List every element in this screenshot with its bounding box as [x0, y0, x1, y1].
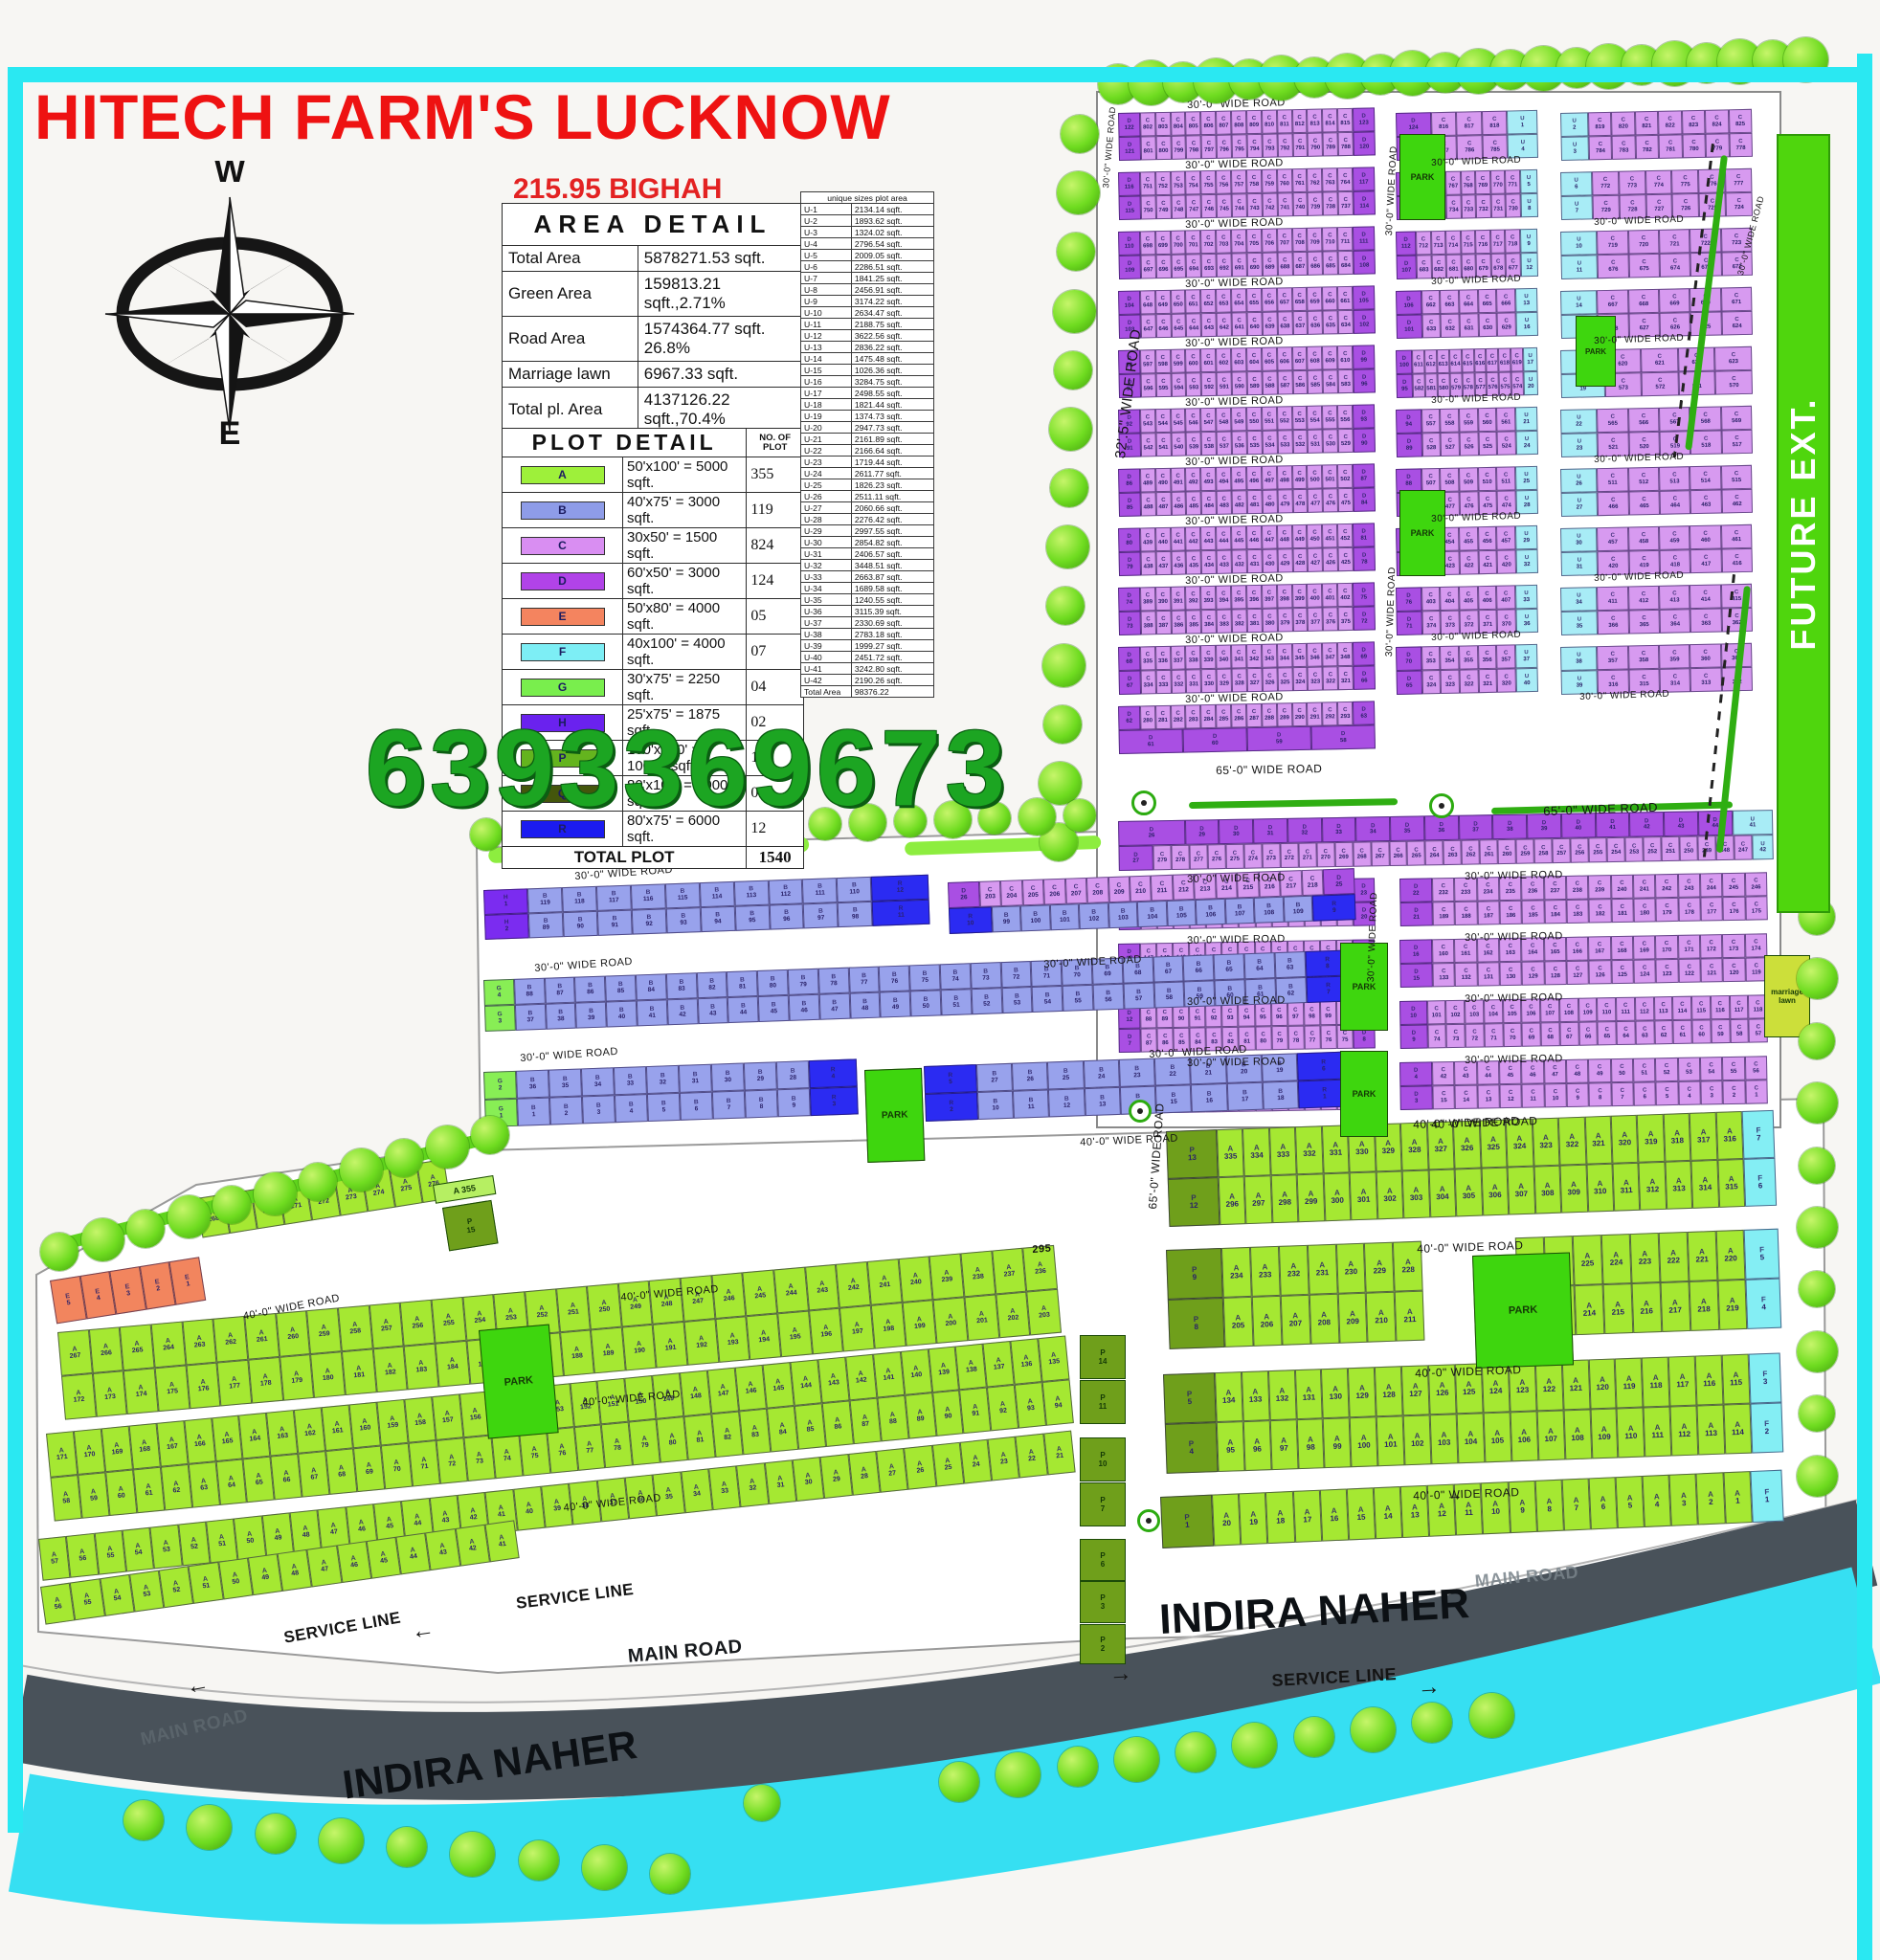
plot-number: 184: [447, 1364, 459, 1371]
plot-number: 87: [556, 991, 563, 997]
plot-letter: U: [1527, 199, 1531, 205]
plot-number: 105: [1491, 1437, 1505, 1446]
plot-cell: A145: [763, 1362, 795, 1409]
plot-cell: A30: [793, 1457, 825, 1502]
plot-letter: A: [1573, 1376, 1578, 1385]
plot-letter: D: [1127, 534, 1130, 540]
map-chip: P 7: [1080, 1482, 1126, 1526]
plot-cell: B79: [788, 969, 819, 995]
plot-cell: C714: [1445, 231, 1461, 255]
plot-cell: A85: [795, 1403, 826, 1450]
plot-cell: A190: [622, 1325, 658, 1371]
plot-number: 41: [1750, 822, 1757, 828]
plot-number: 206: [1261, 1321, 1274, 1329]
plot-cell: C169: [1633, 935, 1656, 959]
plot-number: 103: [1469, 1012, 1479, 1017]
plot-letter: C: [1179, 1010, 1183, 1015]
plot-cell: C204: [1000, 880, 1022, 906]
plot-number: 83: [751, 1432, 759, 1439]
plot-number: 64: [1256, 966, 1263, 972]
plot-letter: C: [1735, 317, 1738, 323]
plot-letter: C: [1207, 556, 1211, 562]
plot-cell: U1: [1507, 110, 1537, 135]
plot-number: 292: [1325, 714, 1334, 721]
plot-cell: C465: [1628, 491, 1660, 516]
plot-cell: C288: [1262, 703, 1277, 727]
plot-number: 421: [1483, 562, 1492, 568]
unique-value: 3242.80 sqft.: [851, 663, 933, 675]
plot-number: 777: [1734, 180, 1743, 187]
plot-letter: D: [1362, 908, 1366, 914]
plot-letter: D: [1268, 825, 1272, 831]
plot-letter: C: [1658, 354, 1662, 360]
plot-cell: U13: [1515, 288, 1538, 312]
plot-cell: U10: [1560, 231, 1598, 256]
plot-number: 171: [1684, 947, 1693, 952]
plot-cell: C374: [1421, 611, 1441, 635]
plot-number: 508: [1444, 479, 1454, 486]
plot-cell: B92: [632, 908, 667, 934]
plot-letter: U: [1524, 650, 1528, 656]
plot-row: P1A20A19A18A17A16A15A14A13A12A11A10A9A8A…: [1160, 1470, 1784, 1548]
plot-cell: C218: [1302, 869, 1324, 896]
plot-cell: P12: [1168, 1177, 1220, 1227]
plot-letter: A: [200, 1378, 206, 1386]
plot-cell: C340: [1216, 645, 1231, 669]
plot-cell: C818: [1482, 111, 1508, 136]
plot-number: 52: [1664, 1070, 1670, 1076]
plot-letter: C: [1222, 497, 1226, 502]
plot-cell: A177: [217, 1360, 253, 1407]
tree-icon: [1058, 1747, 1098, 1787]
plot-letter: C: [1621, 904, 1624, 910]
plot-number: 329: [1220, 680, 1229, 687]
plot-cell: D90: [1354, 428, 1376, 452]
plot-cell: B16: [1191, 1083, 1227, 1112]
plot-row: D3C15C14C13C12C11C10C9C8C7C6C5C4C3C2C1: [1399, 1080, 1767, 1110]
plot-number: 14: [1384, 1512, 1393, 1521]
plot-cell: B119: [527, 887, 563, 913]
plot-number: 819: [1595, 124, 1604, 131]
table-row: U-123622.56 sqft.: [801, 330, 934, 342]
plot-cell: C277: [1189, 844, 1207, 869]
plot-number: 702: [1203, 241, 1213, 248]
plot-letter: C: [1642, 235, 1645, 241]
plot-number: 614: [1450, 361, 1460, 367]
plot-letter: C: [1643, 966, 1646, 971]
plot-number: 443: [1203, 538, 1213, 545]
plot-number: 170: [1662, 947, 1671, 953]
plot-number: 247: [692, 1298, 704, 1305]
plot-cell: A319: [1637, 1114, 1665, 1163]
plot-number: 775: [1681, 182, 1690, 189]
plot-cell: C658: [1292, 287, 1308, 311]
plot-cell: C355: [1459, 645, 1478, 669]
plot-cell: C553: [1292, 406, 1308, 430]
plot-number: 111: [816, 891, 825, 898]
table-row: U-351240.55 sqft.: [801, 594, 934, 606]
plot-number: 114: [1678, 1008, 1688, 1013]
plot-row: D97C596C595C594C593C592C591C590C589C588C…: [1119, 368, 1376, 398]
plot-letter: C: [1222, 141, 1226, 146]
plot-cell: A7: [1561, 1478, 1590, 1530]
plot-number: 202: [1007, 1314, 1018, 1322]
plot-number: 324: [1513, 1143, 1527, 1151]
unique-label: U-36: [801, 606, 852, 617]
plot-number: 247: [1738, 848, 1748, 854]
plot-cell: A134: [1215, 1371, 1243, 1422]
plot-cell: C684: [1338, 251, 1354, 275]
plot-letter: C: [1620, 942, 1623, 947]
plot-row: D109C697C696C695C694C693C692C691C690C689…: [1119, 250, 1376, 279]
plot-letter: B: [563, 1077, 568, 1083]
plot-cell: C528: [1421, 433, 1441, 457]
plot-letter: B: [862, 973, 866, 980]
plot-letter: A: [1413, 1186, 1419, 1194]
plot-cell: D70: [1396, 646, 1421, 671]
plot-letter: A: [103, 1343, 109, 1350]
plot-cell: A220: [1715, 1230, 1746, 1281]
plot-letter: C: [1233, 851, 1237, 857]
plot-letter: C: [1146, 321, 1150, 326]
plot-letter: C: [1504, 295, 1508, 301]
plot-cell: A87: [849, 1398, 881, 1445]
plot-letter: A: [1281, 1437, 1287, 1445]
plot-number: 12: [1508, 1096, 1514, 1102]
plot-letter: U: [1577, 297, 1580, 302]
plot-number: 168: [139, 1446, 150, 1454]
plot-number: 696: [1158, 266, 1168, 273]
plot-number: 58: [1340, 738, 1347, 744]
plot-letter: U: [1525, 614, 1529, 620]
plot-number: 386: [1174, 622, 1183, 629]
plot-letter: C: [1448, 616, 1452, 622]
plot-letter: C: [1585, 1004, 1589, 1010]
plot-number: 102: [1088, 916, 1099, 923]
plot-letter: C: [1191, 296, 1195, 301]
plot-letter: C: [1487, 1091, 1490, 1097]
plot-letter: C: [1417, 356, 1421, 362]
plot-cell: C779: [1706, 133, 1730, 158]
plot-letter: C: [1344, 434, 1348, 440]
plot-number: 4: [1655, 1501, 1660, 1509]
plot-letter: C: [1344, 553, 1348, 559]
plot-letter: A: [387, 1362, 392, 1370]
plot-letter: D: [1508, 821, 1511, 827]
plot-cell: A70: [381, 1443, 413, 1490]
plot-number: 250: [598, 1306, 610, 1314]
plot-number: 62: [1287, 991, 1294, 997]
plot-number: 101: [1060, 917, 1070, 924]
plot-number: 761: [1295, 180, 1305, 187]
plot-letter: C: [1252, 258, 1256, 264]
plot-letter: A: [261, 1568, 267, 1575]
plot-letter: C: [1485, 473, 1488, 479]
plot-letter: D: [1133, 852, 1137, 857]
plot-cell: C405: [1459, 586, 1478, 610]
plot-number: 217: [1668, 1306, 1682, 1315]
plot-letter: A: [775, 1378, 781, 1386]
tree-icon: [1114, 1737, 1159, 1782]
roundabout-icon: [1137, 1509, 1160, 1532]
plot-cell: C693: [1201, 254, 1217, 278]
plot-letter: A: [669, 1433, 675, 1440]
plot-letter: A: [539, 1304, 545, 1312]
plot-cell: C814: [1322, 108, 1337, 132]
plot-letter: C: [1611, 616, 1615, 622]
plot-letter: D: [1128, 261, 1131, 267]
plot-number: 72: [1013, 974, 1019, 981]
plot-number: 135: [1048, 1358, 1060, 1366]
plot-cell: E1: [169, 1257, 206, 1304]
plot-row: D115C750C749C748C747C746C745C744C743C742…: [1119, 190, 1376, 220]
plot-cell: C339: [1200, 645, 1216, 669]
plot-letter: A: [531, 1446, 537, 1454]
plot-letter: B: [714, 888, 719, 895]
plot-cell: C526: [1459, 432, 1478, 456]
plot-number: 94: [714, 919, 721, 925]
plot-cell: R10: [949, 906, 993, 934]
plot-number: 243: [1684, 885, 1693, 891]
plot-letter: C: [1610, 474, 1614, 479]
plot-cell: U12: [1520, 253, 1538, 277]
plot-letter: C: [1598, 905, 1601, 911]
plot-cell: C643: [1201, 313, 1217, 337]
plot-cell: C815: [1337, 108, 1353, 132]
plot-number: 414: [1701, 596, 1711, 603]
plot-cell: D73: [1119, 612, 1141, 635]
plot-letter: C: [1642, 651, 1645, 657]
plot-letter: D: [1361, 292, 1365, 298]
plot-cell: C732: [1476, 194, 1491, 218]
plot-number: 818: [1489, 122, 1499, 129]
plot-cell: C485: [1186, 491, 1201, 515]
plot-number: 42: [679, 1012, 685, 1018]
plot-number: 205: [1028, 892, 1039, 899]
plot-number: 762: [1310, 180, 1320, 187]
unique-value: 2634.47 sqft.: [851, 307, 933, 319]
plot-letter: B: [1266, 903, 1271, 910]
plot-cell: D111: [1353, 226, 1375, 250]
plot-number: 44: [414, 1520, 422, 1527]
tree-icon: [519, 1840, 559, 1881]
plot-number: 755: [1203, 182, 1213, 189]
tree-icon: [299, 1163, 337, 1201]
plot-number: 276: [1212, 857, 1221, 862]
plot-number: 780: [1690, 145, 1699, 152]
plot-number: 70: [1510, 1035, 1516, 1040]
plot-cell: D42: [1629, 812, 1664, 837]
plot-number: 103: [1118, 915, 1129, 922]
plot-letter: C: [1283, 234, 1287, 240]
plot-number: 207: [1289, 1320, 1303, 1328]
plot-letter: C: [1329, 376, 1332, 382]
unique-label: U-14: [801, 353, 852, 365]
plot-cell: C691: [1232, 253, 1247, 277]
plot-letter: C: [1294, 1032, 1298, 1037]
plot-letter: C: [1175, 236, 1179, 242]
plot-number: 104: [1147, 914, 1157, 921]
plot-letter: B: [680, 889, 684, 896]
plot-letter: C: [1486, 319, 1489, 324]
plot-cell: C166: [1566, 937, 1589, 961]
plot-number: 1: [504, 902, 508, 908]
plot-cell: A100: [1350, 1416, 1378, 1467]
plot-number: 419: [1640, 563, 1649, 569]
map-chip: P 2: [1080, 1624, 1126, 1664]
plot-cell: U27: [1561, 492, 1599, 517]
plot-number: 263: [194, 1342, 206, 1349]
plot-number: 258: [1538, 851, 1548, 857]
plot-cell: B9: [777, 1088, 811, 1117]
plot-cell: C585: [1308, 370, 1323, 394]
plot-number: 1: [1755, 1092, 1757, 1098]
plot-letter: C: [1703, 650, 1707, 656]
plot-letter: A: [803, 1375, 809, 1383]
plot-cell: C270: [1316, 842, 1334, 867]
plot-type-swatch: E: [521, 608, 605, 626]
plot-cell: A232: [1279, 1245, 1309, 1296]
plot-cell: A333: [1269, 1126, 1297, 1175]
plot-letter: A: [1304, 1508, 1309, 1517]
plot-number: 413: [1669, 597, 1679, 604]
plot-letter: C: [1222, 437, 1226, 443]
plot-letter: D: [1542, 820, 1546, 826]
plot-number: 527: [1445, 444, 1455, 451]
plot-cell: C497: [1262, 466, 1277, 490]
plot-number: 331: [1189, 681, 1198, 688]
plot-number: 80: [668, 1439, 676, 1447]
plot-type-swatch-cell: F: [503, 635, 623, 670]
plot-cell: C413: [1659, 585, 1690, 610]
plot-number: 29: [833, 1476, 841, 1483]
plot-letter: U: [1525, 436, 1529, 442]
plot-cell: C586: [1292, 370, 1308, 394]
plot-number: 19: [1276, 1067, 1283, 1074]
plot-letter: C: [1598, 881, 1601, 887]
tree-icon: [1049, 408, 1092, 451]
plot-cell: C507: [1421, 468, 1441, 492]
plot-cell: A65: [243, 1457, 275, 1503]
plot-cell: C406: [1478, 586, 1497, 610]
plot-number: 32: [1301, 831, 1308, 836]
plot-number: 402: [1340, 594, 1350, 601]
plot-letter: B: [758, 1070, 763, 1077]
plot-number: 480: [1265, 501, 1275, 508]
plot-number: 36: [529, 1084, 536, 1091]
plot-letter: C: [1146, 677, 1150, 682]
plot-number: 16: [1206, 1098, 1213, 1104]
plot-number: 94: [1243, 1014, 1250, 1020]
plot-number: 335: [1143, 658, 1153, 665]
plot-letter: C: [1610, 652, 1614, 657]
plot-cell: B36: [516, 1070, 549, 1099]
plot-letter: C: [1630, 177, 1634, 183]
plot-letter: B: [710, 1004, 715, 1011]
plot-number: 495: [1234, 479, 1243, 485]
plot-letter: R: [968, 914, 973, 921]
plot-number: 13: [1523, 301, 1530, 306]
plot-letter: C: [1147, 1035, 1151, 1040]
plot-number: 40: [526, 1508, 534, 1516]
plot-cell: A170: [74, 1428, 105, 1475]
plot-number: 333: [1158, 681, 1168, 688]
plot-number: 542: [1144, 445, 1153, 452]
plot-number: 432: [1235, 562, 1244, 568]
plot-cell: C631: [1459, 313, 1478, 337]
plot-number: 610: [1340, 357, 1350, 364]
plot-letter: A: [948, 1313, 953, 1321]
plot-cell: A306: [1481, 1168, 1509, 1216]
plot-cell: C697: [1140, 255, 1155, 278]
plot-cell: C267: [1371, 841, 1389, 866]
plot-letter: C: [1237, 200, 1241, 206]
plot-number: 327: [1250, 679, 1260, 686]
plot-letter: C: [1328, 174, 1332, 180]
plot-letter: C: [1642, 473, 1645, 479]
plot-cell: A122: [1534, 1360, 1563, 1411]
plot-number: 37: [1523, 657, 1530, 662]
plot-cell: A28: [848, 1451, 881, 1496]
plot-cell: C452: [1337, 523, 1353, 547]
plot-cell: C7: [1611, 1082, 1634, 1106]
plot-number: 26: [916, 1467, 925, 1475]
plot-number: 1: [1185, 1522, 1190, 1530]
plot-cell: A112: [1670, 1406, 1699, 1457]
plot-letter: E: [185, 1274, 190, 1281]
plot-cell: C592: [1201, 372, 1217, 396]
plot-cell: B106: [1196, 899, 1225, 925]
plot-cell: A49: [261, 1512, 294, 1557]
plot-letter: A: [1225, 1389, 1231, 1397]
plot-number: 10: [1410, 1013, 1417, 1018]
plot-letter: C: [1283, 258, 1287, 264]
plot-cell: A62: [161, 1464, 192, 1511]
plot-letter: A: [1334, 1435, 1340, 1443]
plot-letter: A: [944, 1269, 950, 1277]
plot-letter: C: [1207, 675, 1211, 680]
plot-letter: D: [1361, 114, 1365, 120]
plot-cell: C179: [1656, 898, 1679, 922]
plot-cell: A175: [155, 1365, 190, 1412]
plot-letter: A: [996, 1357, 1001, 1365]
plot-number: 218: [1308, 882, 1318, 889]
plot-number: 323: [1445, 681, 1455, 688]
plot-letter: C: [1176, 379, 1180, 385]
plot-cell: B82: [696, 971, 727, 998]
plot-number: 61: [145, 1490, 152, 1498]
plot-letter: H: [504, 895, 508, 902]
plot-letter: C: [1541, 845, 1545, 851]
plot-cell: C630: [1478, 313, 1497, 337]
plot-number: 437: [1158, 563, 1168, 569]
plot-cell: A320: [1611, 1115, 1639, 1164]
plot-letter: C: [1267, 318, 1271, 323]
table-row: U-372330.69 sqft.: [801, 617, 934, 629]
plot-cell: B55: [1063, 985, 1094, 1012]
plot-number: 606: [1280, 359, 1289, 366]
plot-band: D74C389C390C391C392C393C394C395C396C397C…: [1118, 582, 1376, 635]
plot-letter: C: [1735, 590, 1738, 595]
plot-cell: A172: [61, 1373, 97, 1420]
plot-cell: U32: [1515, 549, 1538, 573]
plot-number: 511: [1501, 479, 1511, 484]
plot-cell: A176: [186, 1363, 221, 1410]
plot-cell: B72: [1000, 961, 1032, 988]
plot-number: 230: [1345, 1268, 1358, 1277]
plot-number: 63: [1360, 713, 1367, 719]
plot-cell: C769: [1475, 170, 1490, 194]
